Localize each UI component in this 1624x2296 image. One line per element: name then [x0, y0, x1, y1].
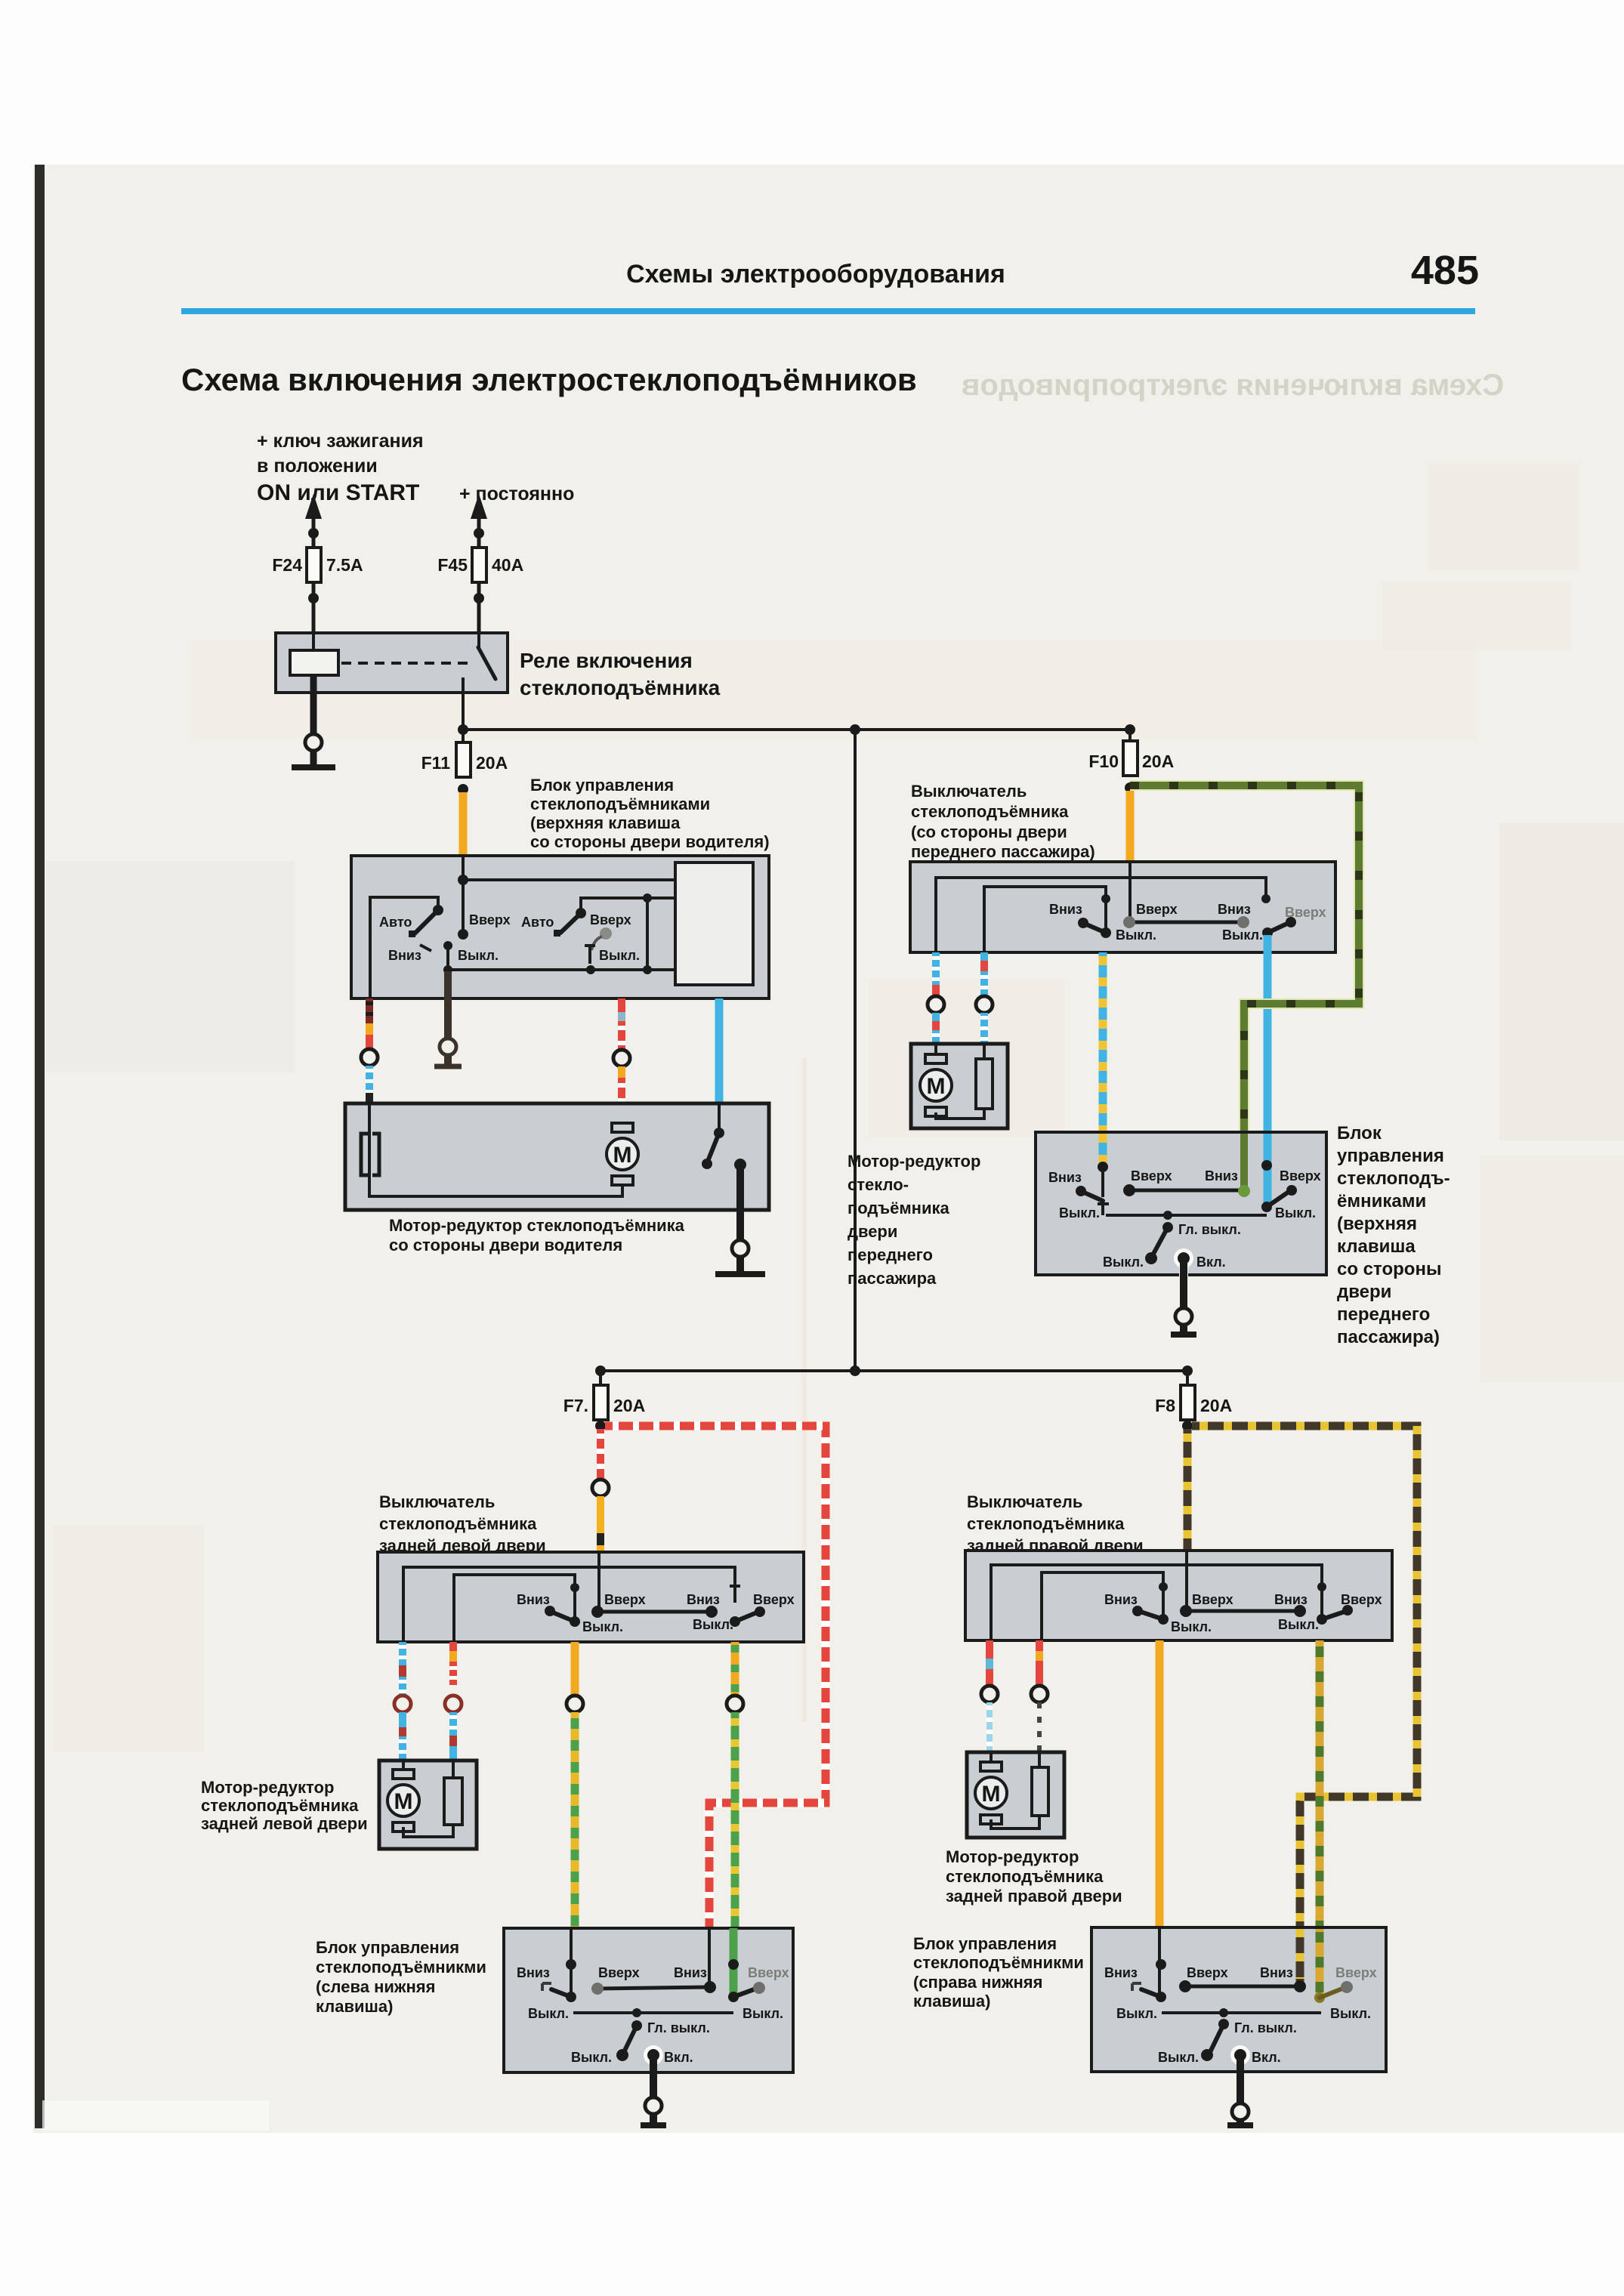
svg-text:Выключатель: Выключатель: [379, 1492, 495, 1511]
svg-text:(верхняя: (верхняя: [1337, 1214, 1417, 1234]
svg-text:(справа нижняя: (справа нижняя: [913, 1973, 1042, 1992]
svg-text:20A: 20A: [1142, 751, 1174, 771]
svg-text:7.5A: 7.5A: [326, 555, 363, 575]
svg-text:Авто: Авто: [379, 915, 412, 930]
svg-text:Вниз: Вниз: [1260, 1965, 1293, 1980]
svg-text:Вниз: Вниз: [517, 1592, 550, 1607]
svg-text:Вкл.: Вкл.: [664, 2050, 693, 2065]
svg-text:Вниз: Вниз: [674, 1965, 707, 1980]
svg-text:Выкл.: Выкл.: [1158, 2050, 1199, 2065]
svg-text:Схема включения электростеклоп: Схема включения электростеклоподъёмников: [181, 362, 917, 397]
svg-text:485: 485: [1411, 248, 1479, 293]
svg-text:задней левой двери: задней левой двери: [201, 1814, 368, 1833]
svg-text:пассажира): пассажира): [1337, 1327, 1440, 1347]
svg-text:стекло-: стекло-: [848, 1175, 909, 1194]
svg-text:F24: F24: [272, 555, 302, 575]
svg-text:стеклоподъёмника: стеклоподъёмника: [520, 676, 721, 699]
svg-text:ON или START: ON или START: [257, 480, 419, 505]
svg-text:Вверх: Вверх: [1285, 905, 1326, 920]
svg-text:Выкл.: Выкл.: [599, 948, 640, 963]
svg-text:Мотор-редуктор: Мотор-редуктор: [848, 1152, 980, 1171]
svg-text:стеклоподъ-: стеклоподъ-: [1337, 1168, 1450, 1189]
svg-text:переднего пассажира): переднего пассажира): [911, 842, 1095, 861]
svg-text:Выкл.: Выкл.: [458, 948, 499, 963]
svg-text:Выкл.: Выкл.: [1278, 1617, 1319, 1632]
svg-text:Вверх: Вверх: [1131, 1168, 1172, 1183]
svg-text:стеклоподъёмникми: стеклоподъёмникми: [316, 1958, 486, 1977]
svg-text:Вверх: Вверх: [1187, 1965, 1228, 1980]
svg-text:F7.: F7.: [563, 1396, 588, 1415]
svg-text:Выкл.: Выкл.: [1116, 927, 1156, 943]
svg-text:Выключатель: Выключатель: [967, 1492, 1082, 1511]
svg-text:Вкл.: Вкл.: [1252, 2050, 1281, 2065]
svg-text:Выкл.: Выкл.: [1330, 2006, 1371, 2021]
svg-text:Выкл.: Выкл.: [582, 1619, 623, 1634]
svg-text:Схема включения электроприводо: Схема включения электроприводов: [962, 369, 1504, 402]
svg-text:Авто: Авто: [521, 915, 554, 930]
svg-text:стеклоподъёмникми: стеклоподъёмникми: [913, 1953, 1084, 1972]
svg-text:задней правой двери: задней правой двери: [946, 1887, 1122, 1906]
svg-text:Выкл.: Выкл.: [1171, 1619, 1212, 1634]
svg-text:Блок управления: Блок управления: [316, 1938, 459, 1957]
svg-text:ёмниками: ёмниками: [1337, 1191, 1426, 1211]
svg-text:Схемы электрооборудования: Схемы электрооборудования: [626, 260, 1005, 289]
svg-text:Блок управления: Блок управления: [913, 1934, 1057, 1953]
svg-text:Вниз: Вниз: [1205, 1168, 1238, 1183]
svg-text:Блок: Блок: [1337, 1123, 1382, 1143]
svg-text:стеклоподъёмника: стеклоподъёмника: [967, 1514, 1125, 1533]
svg-text:двери: двери: [1337, 1282, 1391, 1302]
svg-text:Мотор-редуктор стеклоподъёмник: Мотор-редуктор стеклоподъёмника: [389, 1216, 685, 1235]
svg-text:40A: 40A: [492, 555, 523, 575]
svg-text:стеклоподъёмника: стеклоподъёмника: [379, 1514, 537, 1533]
svg-text:подъёмника: подъёмника: [848, 1199, 949, 1217]
svg-text:M: M: [613, 1143, 632, 1168]
svg-text:Вниз: Вниз: [687, 1592, 720, 1607]
svg-text:пассажира: пассажира: [848, 1269, 937, 1288]
svg-text:Вниз: Вниз: [1104, 1965, 1138, 1980]
svg-text:клавиша): клавиша): [316, 1997, 393, 2016]
svg-text:Выкл.: Выкл.: [528, 2006, 569, 2021]
svg-text:Вкл.: Вкл.: [1196, 1254, 1226, 1270]
svg-text:Вниз: Вниз: [388, 948, 421, 963]
svg-text:Вниз: Вниз: [517, 1965, 550, 1980]
svg-text:Вверх: Вверх: [590, 912, 631, 927]
svg-text:клавиша: клавиша: [1337, 1236, 1416, 1257]
svg-text:Вверх: Вверх: [1136, 902, 1178, 917]
svg-text:стеклоподъёмника: стеклоподъёмника: [946, 1867, 1104, 1886]
svg-text:Выкл.: Выкл.: [1059, 1205, 1100, 1221]
svg-text:20A: 20A: [1200, 1396, 1232, 1415]
svg-text:+ ключ зажигания: + ключ зажигания: [257, 430, 424, 452]
svg-text:Вверх: Вверх: [469, 912, 511, 927]
svg-text:(слева нижняя: (слева нижняя: [316, 1977, 435, 1996]
svg-text:Выкл.: Выкл.: [743, 2006, 783, 2021]
svg-text:20A: 20A: [613, 1396, 645, 1415]
svg-text:Выкл.: Выкл.: [1103, 1254, 1144, 1270]
svg-text:Реле включения: Реле включения: [520, 649, 693, 672]
svg-text:Вверх: Вверх: [598, 1965, 640, 1980]
svg-text:Выкл.: Выкл.: [571, 2050, 612, 2065]
svg-text:Мотор-редуктор: Мотор-редуктор: [946, 1847, 1079, 1866]
svg-text:Вверх: Вверх: [1335, 1965, 1377, 1980]
svg-text:(верхняя клавиша: (верхняя клавиша: [530, 813, 681, 832]
svg-text:Вверх: Вверх: [604, 1592, 646, 1607]
svg-text:Гл. выкл.: Гл. выкл.: [647, 2020, 710, 2035]
svg-text:F8: F8: [1155, 1396, 1175, 1415]
svg-text:Выкл.: Выкл.: [1116, 2006, 1157, 2021]
svg-text:Вниз: Вниз: [1049, 902, 1082, 917]
svg-text:F45: F45: [437, 555, 468, 575]
svg-text:Вверх: Вверх: [753, 1592, 795, 1607]
svg-text:Выключатель: Выключатель: [911, 782, 1027, 801]
svg-text:стеклоподъёмника: стеклоподъёмника: [201, 1796, 359, 1815]
svg-text:Вниз: Вниз: [1218, 902, 1251, 917]
svg-text:клавиша): клавиша): [913, 1992, 990, 2011]
svg-text:переднего: переднего: [848, 1245, 933, 1264]
svg-text:F11: F11: [421, 753, 451, 773]
svg-text:Выкл.: Выкл.: [1275, 1205, 1316, 1221]
svg-text:F10: F10: [1088, 751, 1119, 771]
svg-text:Выкл.: Выкл.: [1222, 927, 1263, 943]
svg-text:со стороны двери водителя: со стороны двери водителя: [389, 1236, 622, 1254]
svg-text:M: M: [394, 1789, 413, 1814]
svg-text:Вниз: Вниз: [1104, 1592, 1138, 1607]
svg-text:M: M: [927, 1074, 946, 1099]
svg-text:Вверх: Вверх: [748, 1965, 789, 1980]
svg-text:управления: управления: [1337, 1146, 1444, 1166]
svg-text:стеклоподъёмниками: стеклоподъёмниками: [530, 795, 710, 813]
svg-text:20A: 20A: [476, 753, 508, 773]
svg-text:Мотор-редуктор: Мотор-редуктор: [201, 1778, 334, 1797]
svg-text:Выкл.: Выкл.: [693, 1617, 733, 1632]
svg-text:Вниз: Вниз: [1274, 1592, 1308, 1607]
svg-text:Вверх: Вверх: [1192, 1592, 1233, 1607]
svg-text:Гл. выкл.: Гл. выкл.: [1234, 2020, 1297, 2035]
svg-text:со стороны двери водителя): со стороны двери водителя): [530, 832, 770, 851]
svg-text:со стороны: со стороны: [1337, 1259, 1441, 1279]
svg-text:в положении: в положении: [257, 455, 378, 477]
svg-text:Вниз: Вниз: [1048, 1170, 1082, 1185]
svg-text:Вверх: Вверх: [1341, 1592, 1382, 1607]
svg-text:(со стороны двери: (со стороны двери: [911, 822, 1067, 841]
svg-text:Блок управления: Блок управления: [530, 776, 674, 795]
svg-text:стеклоподъёмника: стеклоподъёмника: [911, 802, 1069, 821]
svg-text:двери: двери: [848, 1222, 897, 1241]
svg-text:переднего: переднего: [1337, 1304, 1430, 1325]
svg-text:Гл. выкл.: Гл. выкл.: [1178, 1222, 1241, 1237]
svg-text:Вверх: Вверх: [1280, 1168, 1321, 1183]
svg-text:M: M: [982, 1782, 1001, 1807]
